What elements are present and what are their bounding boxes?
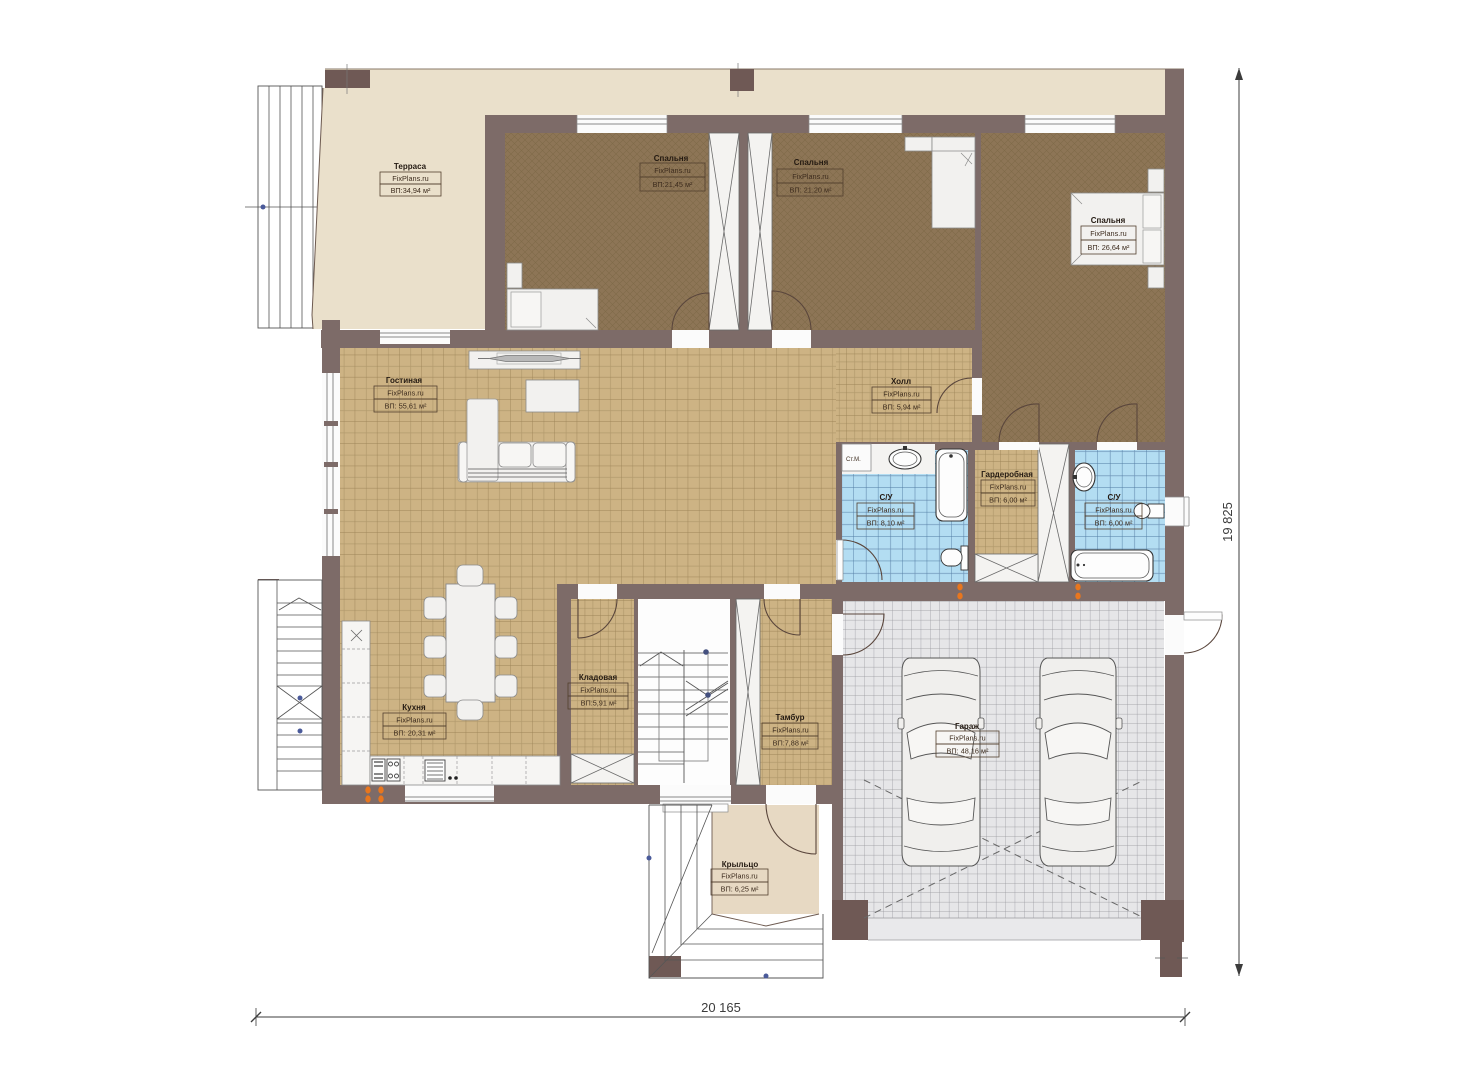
svg-text:С/У: С/У xyxy=(1108,493,1122,502)
svg-text:Гараж: Гараж xyxy=(955,722,979,731)
svg-text:Спальня: Спальня xyxy=(654,154,689,163)
svg-text:Терраса: Терраса xyxy=(394,162,427,171)
svg-text:20 165: 20 165 xyxy=(701,1000,741,1015)
svg-text:Спальня: Спальня xyxy=(794,158,829,167)
svg-text:ВП:21,45 м²: ВП:21,45 м² xyxy=(653,180,693,189)
svg-text:FixPlans.ru: FixPlans.ru xyxy=(387,389,424,398)
svg-text:ВП:34,94 м²: ВП:34,94 м² xyxy=(391,186,431,195)
svg-text:ВП: 55,61 м²: ВП: 55,61 м² xyxy=(385,402,427,411)
svg-text:Холл: Холл xyxy=(891,377,911,386)
svg-text:ВП: 5,94 м²: ВП: 5,94 м² xyxy=(883,403,921,412)
svg-text:Кухня: Кухня xyxy=(402,703,426,712)
svg-text:FixPlans.ru: FixPlans.ru xyxy=(580,686,617,695)
svg-text:FixPlans.ru: FixPlans.ru xyxy=(990,483,1027,492)
svg-text:ВП: 26,64 м²: ВП: 26,64 м² xyxy=(1088,243,1130,252)
svg-text:FixPlans.ru: FixPlans.ru xyxy=(1090,229,1127,238)
svg-text:С/У: С/У xyxy=(880,493,894,502)
svg-text:ВП: 8,10 м²: ВП: 8,10 м² xyxy=(867,519,905,528)
svg-text:ВП: 6,25 м²: ВП: 6,25 м² xyxy=(721,885,759,894)
svg-text:Тамбур: Тамбур xyxy=(775,713,804,722)
svg-text:FixPlans.ru: FixPlans.ru xyxy=(1095,506,1132,515)
svg-text:FixPlans.ru: FixPlans.ru xyxy=(654,166,691,175)
svg-text:ВП: 6,00 м²: ВП: 6,00 м² xyxy=(989,496,1027,505)
svg-text:FixPlans.ru: FixPlans.ru xyxy=(867,506,904,515)
svg-text:Спальня: Спальня xyxy=(1091,216,1126,225)
svg-text:ВП: 21,20 м²: ВП: 21,20 м² xyxy=(790,186,832,195)
svg-text:FixPlans.ru: FixPlans.ru xyxy=(792,172,829,181)
svg-text:FixPlans.ru: FixPlans.ru xyxy=(949,734,986,743)
svg-text:ВП:7,88 м²: ВП:7,88 м² xyxy=(773,739,809,748)
svg-text:Крыльцо: Крыльцо xyxy=(722,860,759,869)
svg-text:ВП: 48,16 м²: ВП: 48,16 м² xyxy=(947,747,989,756)
svg-text:19 825: 19 825 xyxy=(1220,502,1235,542)
svg-text:FixPlans.ru: FixPlans.ru xyxy=(392,174,429,183)
svg-text:Гостиная: Гостиная xyxy=(386,376,422,385)
svg-text:ВП: 6,00 м²: ВП: 6,00 м² xyxy=(1095,519,1133,528)
svg-text:FixPlans.ru: FixPlans.ru xyxy=(883,390,920,399)
svg-text:FixPlans.ru: FixPlans.ru xyxy=(396,716,433,725)
svg-text:ВП: 20,31 м²: ВП: 20,31 м² xyxy=(394,729,436,738)
svg-text:Гардеробная: Гардеробная xyxy=(981,470,1033,479)
svg-text:FixPlans.ru: FixPlans.ru xyxy=(772,726,809,735)
svg-text:FixPlans.ru: FixPlans.ru xyxy=(721,872,758,881)
svg-text:Кладовая: Кладовая xyxy=(579,673,618,682)
svg-text:Ст.М.: Ст.М. xyxy=(846,457,861,463)
svg-text:ВП:5,91 м²: ВП:5,91 м² xyxy=(581,699,617,708)
